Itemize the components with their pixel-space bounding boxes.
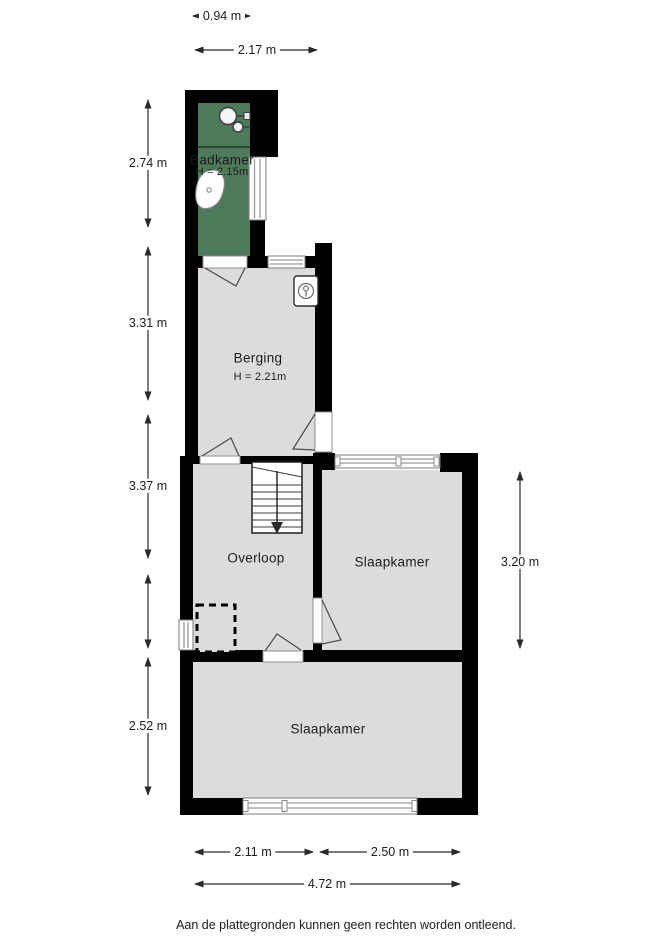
dashed-hatch-outline [197, 605, 235, 652]
window-slaapkamer-onder-bottom [243, 798, 417, 814]
stairs-down-icon [252, 462, 302, 534]
dim-left-berging: 3.31 m [125, 316, 171, 330]
dim-bottom-total: 4.72 m [304, 877, 350, 891]
room-overloop-label: Overloop [227, 551, 284, 566]
floorplan-page: Badkamer H = 2.15m Berging H = 2.21m Ove… [0, 0, 667, 944]
room-slaapkamer-onder-label: Slaapkamer [290, 722, 365, 737]
dim-left-badkamer: 2.74 m [125, 156, 171, 170]
dim-top-berging-width: 2.17 m [234, 43, 280, 57]
boiler-icon [294, 276, 318, 306]
dim-left-slaapkamer: 2.52 m [125, 719, 171, 733]
room-berging-height: H = 2.21m [234, 371, 287, 383]
window-berging-top [268, 256, 305, 268]
room-slaapkamer-rechts-label: Slaapkamer [354, 555, 429, 570]
room-badkamer-height: H = 2.15m [196, 166, 249, 178]
dim-left-overloop: 3.37 m [125, 479, 171, 493]
dim-bottom-left: 2.11 m [230, 845, 275, 859]
footer-disclaimer: Aan de plattegronden kunnen geen rechten… [176, 918, 516, 932]
window-slaapkamer-rechts-top [335, 455, 440, 468]
room-berging-label: Berging [234, 351, 283, 366]
dim-top-badkamer-width: 0.94 m [199, 9, 245, 23]
dim-right-slaapkamer: 3.20 m [497, 555, 543, 569]
dim-bottom-right: 2.50 m [367, 845, 413, 859]
floorplan-drawing [0, 0, 667, 944]
window-overloop-left [179, 620, 193, 650]
